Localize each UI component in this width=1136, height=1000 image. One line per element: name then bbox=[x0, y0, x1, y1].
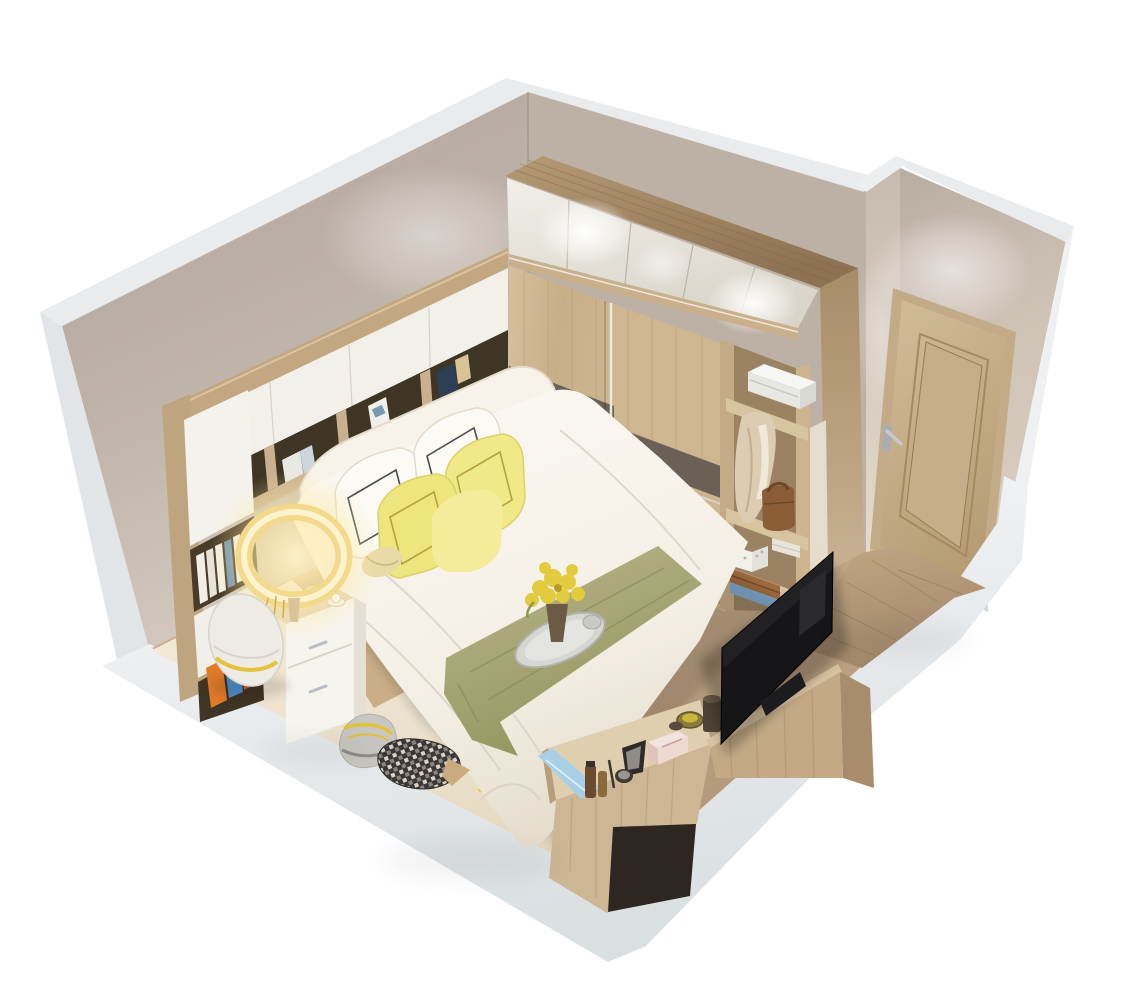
compact-mirror bbox=[618, 771, 630, 780]
isometric-bedroom-scene bbox=[0, 0, 1136, 1000]
cabinet-light-3 bbox=[632, 242, 692, 286]
lamp-base bbox=[288, 598, 300, 622]
tv-cabinet-side bbox=[840, 672, 874, 788]
small-cup bbox=[669, 722, 683, 731]
cabinet-light-1 bbox=[537, 198, 633, 266]
perfume-bottle-2 bbox=[598, 771, 607, 797]
perfume-bottle-1 bbox=[585, 765, 596, 798]
bowl-inner bbox=[682, 714, 698, 723]
tray-teapot bbox=[583, 615, 601, 629]
handbag bbox=[762, 483, 795, 531]
bedroom-render bbox=[0, 0, 1136, 1000]
bottle-cap-1 bbox=[586, 761, 595, 767]
flower-center bbox=[554, 584, 562, 592]
